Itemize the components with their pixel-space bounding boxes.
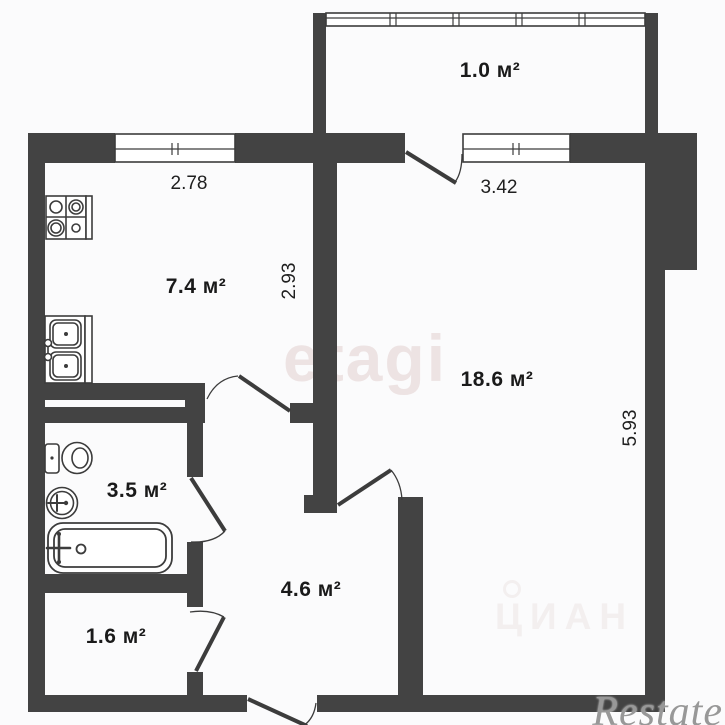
living-room-door xyxy=(338,470,402,505)
wall-divider-foot xyxy=(304,495,337,513)
wall-kitchen-living-divider xyxy=(313,133,337,513)
wall-storage-door-stub xyxy=(187,672,203,695)
kitchen-window xyxy=(115,134,235,162)
room-label-hallway: 4.6 м² xyxy=(281,578,342,602)
storage-door xyxy=(190,611,224,671)
balcony-door xyxy=(406,152,462,183)
room-label-bathroom: 3.5 м² xyxy=(107,479,168,503)
dimension-kitchen-width: 2.78 xyxy=(171,173,208,195)
wall-bathroom-bottom xyxy=(45,574,187,593)
wall-right-thick-block xyxy=(645,163,697,270)
wall-kitchen-door-stub xyxy=(290,403,313,423)
wall-top-right xyxy=(570,133,697,163)
room-label-living: 18.6 м² xyxy=(461,368,534,392)
kitchen-sink-icon xyxy=(45,316,93,383)
room-label-kitchen: 7.4 м² xyxy=(166,275,227,299)
kitchen-door xyxy=(207,376,290,411)
room-label-balcony: 1.0 м² xyxy=(460,59,521,83)
balcony-glazing xyxy=(326,13,645,26)
toilet-icon xyxy=(45,443,92,474)
wall-bathroom-right-upper xyxy=(187,423,203,477)
wall-right xyxy=(645,270,665,712)
bathtub-icon xyxy=(47,523,172,573)
room-label-storage: 1.6 м² xyxy=(86,625,147,649)
entrance-door xyxy=(248,699,316,725)
wall-balcony-post-left xyxy=(313,13,326,133)
wall-bottom-left xyxy=(28,695,247,712)
bathroom-door xyxy=(191,478,225,542)
wall-hallway-living-divider xyxy=(398,497,423,695)
wall-bathroom-right-lower xyxy=(187,542,203,607)
walls xyxy=(28,13,697,712)
wall-left xyxy=(28,133,45,712)
watermark-restate: Restate xyxy=(592,691,725,725)
wall-slit xyxy=(45,400,185,407)
living-window xyxy=(463,134,570,162)
dimension-kitchen-depth: 2.93 xyxy=(279,263,301,300)
floor-plan: etagi ЦИАН xyxy=(0,0,725,725)
stove-icon xyxy=(46,196,92,239)
floor-plan-drawing xyxy=(0,0,725,725)
wall-balcony-post-right xyxy=(645,13,658,133)
wash-basin-icon xyxy=(47,488,78,519)
dimension-living-width: 3.42 xyxy=(481,177,518,199)
dimension-living-depth: 5.93 xyxy=(620,410,642,447)
